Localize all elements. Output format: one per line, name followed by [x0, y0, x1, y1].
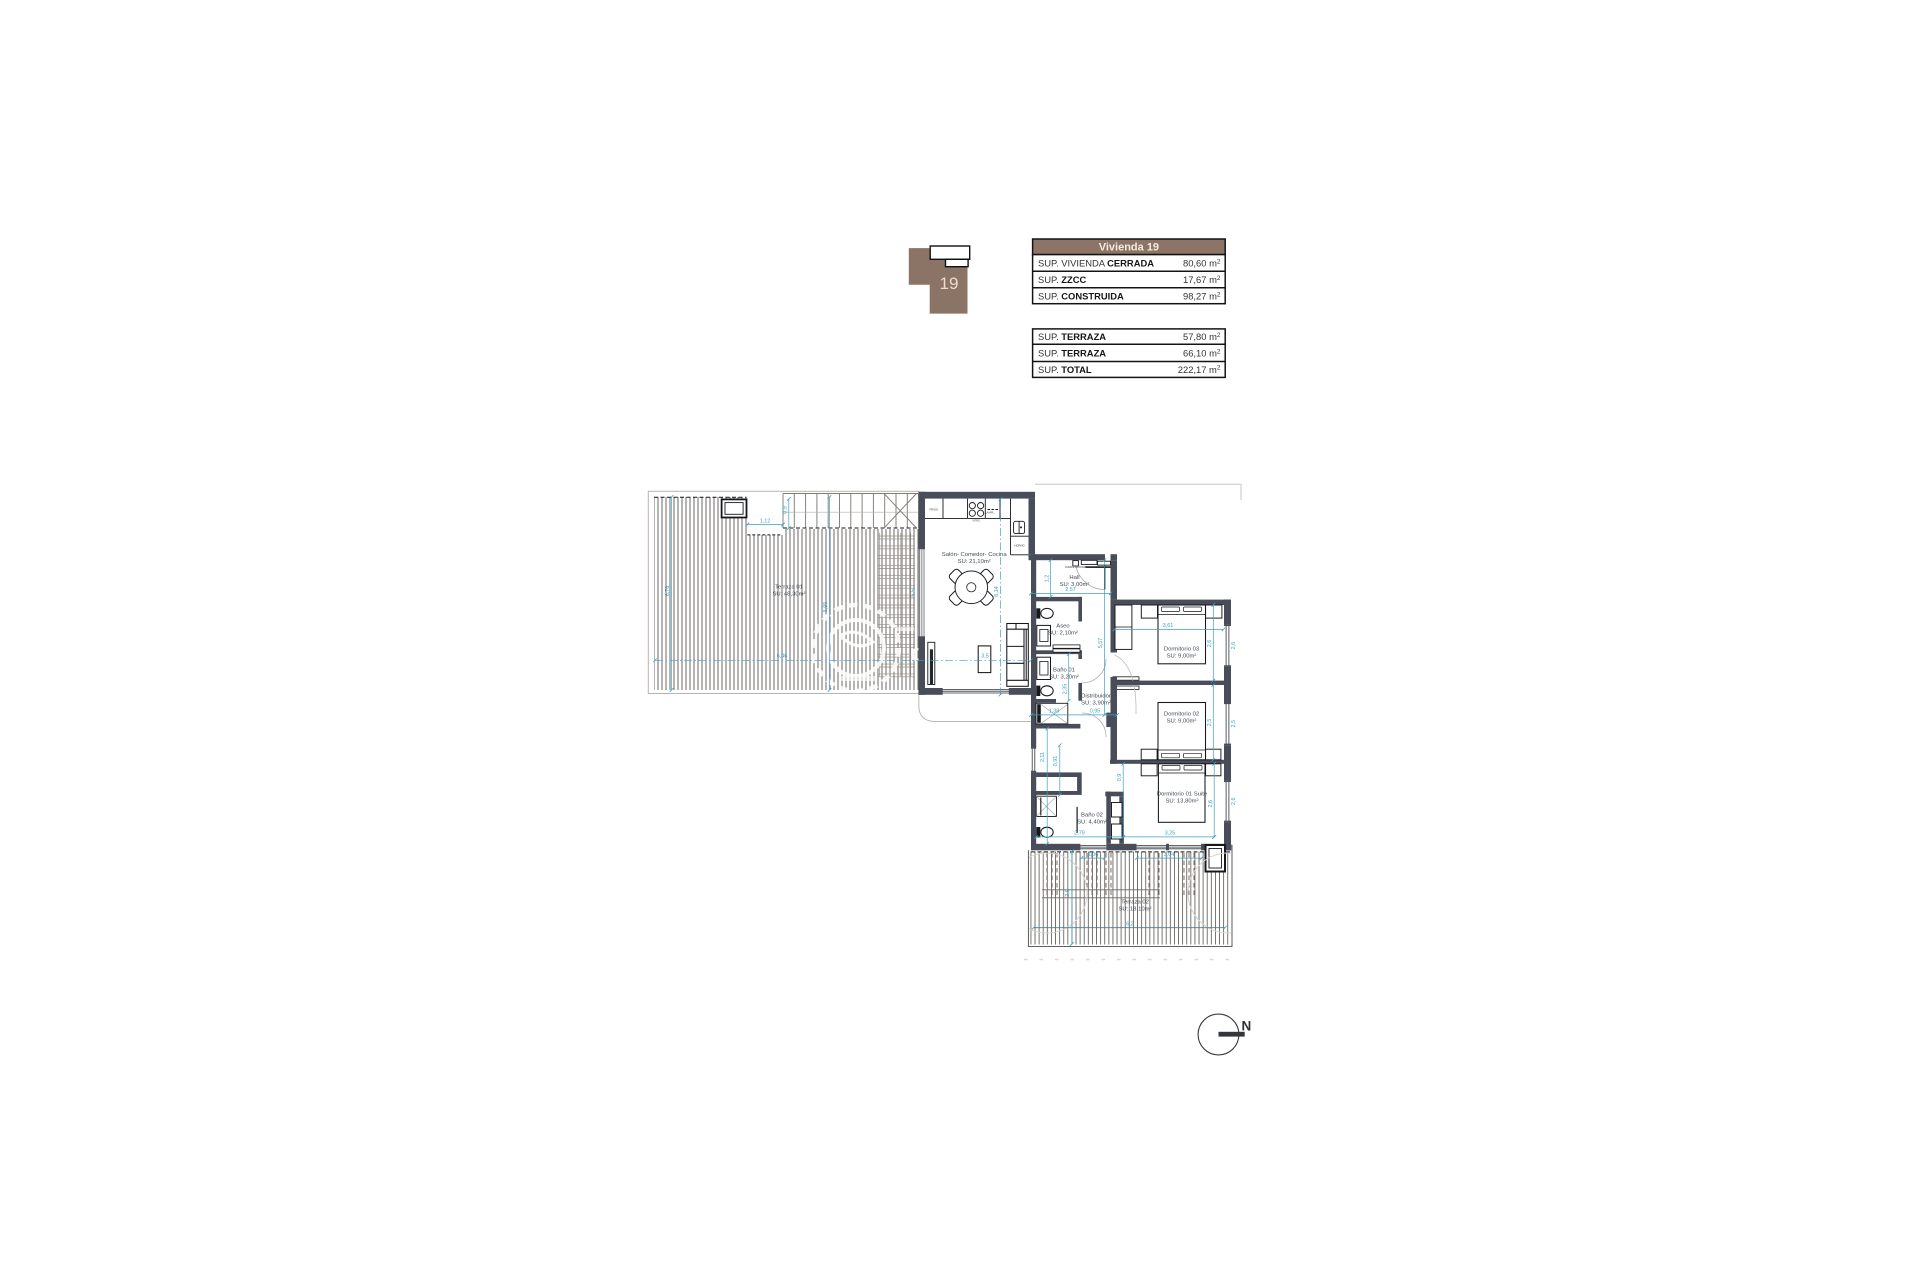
svg-text:1,2: 1,2: [1044, 575, 1050, 583]
svg-text:0,9: 0,9: [783, 506, 789, 514]
svg-text:3,5: 3,5: [981, 654, 989, 660]
svg-text:SUP. ZZCC: SUP. ZZCC: [1038, 274, 1087, 285]
svg-text:5,95: 5,95: [823, 602, 829, 613]
svg-text:SU: 9,00m²: SU: 9,00m²: [1167, 654, 1197, 660]
svg-text:6,46: 6,46: [777, 654, 788, 660]
svg-text:2,9: 2,9: [1065, 889, 1071, 897]
svg-text:2,6: 2,6: [1231, 642, 1237, 650]
svg-text:Terraza 01: Terraza 01: [775, 585, 803, 591]
svg-text:SUP. CONSTRUIDA: SUP. CONSTRUIDA: [1038, 291, 1124, 302]
svg-text:Salón- Comedor- Cocina: Salón- Comedor- Cocina: [942, 552, 1008, 558]
svg-text:1,38: 1,38: [1049, 709, 1060, 715]
svg-text:SU: 3,20m²: SU: 3,20m²: [1049, 675, 1079, 681]
svg-text:SU: 2,10m²: SU: 2,10m²: [1048, 631, 1078, 637]
svg-text:Hall: Hall: [1069, 575, 1079, 581]
svg-text:Vivienda 19: Vivienda 19: [1099, 242, 1159, 254]
svg-text:Baño 02: Baño 02: [1081, 813, 1103, 819]
svg-text:SUP. TERRAZA: SUP. TERRAZA: [1038, 348, 1106, 359]
svg-text:SU: 3,90m²: SU: 3,90m²: [1081, 701, 1111, 707]
svg-text:SUP. TOTAL: SUP. TOTAL: [1038, 364, 1092, 375]
svg-text:57,80 m2: 57,80 m2: [1183, 331, 1221, 342]
svg-text:2,79: 2,79: [1074, 831, 1085, 837]
svg-text:SU: 13,80m²: SU: 13,80m²: [1165, 799, 1198, 805]
svg-text:98,27 m2: 98,27 m2: [1183, 291, 1221, 302]
svg-text:N: N: [1242, 1018, 1252, 1033]
svg-text:Dormitorio 02: Dormitorio 02: [1164, 712, 1199, 718]
svg-text:2,5: 2,5: [1207, 719, 1213, 727]
svg-text:1,12: 1,12: [760, 518, 771, 524]
svg-text:HORNO: HORNO: [1014, 543, 1024, 547]
svg-text:2,35: 2,35: [1062, 684, 1068, 695]
svg-text:2,6: 2,6: [1207, 640, 1213, 648]
svg-text:MUEBLE ZAPATERO: MUEBLE ZAPATERO: [1065, 566, 1087, 569]
svg-text:Dormitorio 01 Suite: Dormitorio 01 Suite: [1157, 792, 1208, 798]
svg-text:SU: 4,40m²: SU: 4,40m²: [1077, 820, 1107, 826]
svg-text:SU: 21,10m²: SU: 21,10m²: [958, 559, 991, 565]
svg-text:5,5: 5,5: [911, 589, 917, 597]
svg-text:VITRO.: VITRO.: [972, 520, 980, 523]
svg-text:SU: 18,10m²: SU: 18,10m²: [1118, 907, 1151, 913]
svg-text:Baño 01: Baño 01: [1053, 668, 1075, 674]
svg-text:2,6: 2,6: [1231, 798, 1237, 806]
svg-text:1,06: 1,06: [1088, 852, 1099, 858]
svg-text:3,61: 3,61: [1163, 623, 1174, 629]
svg-text:80,60 m2: 80,60 m2: [1183, 258, 1221, 269]
svg-text:2,11: 2,11: [1040, 752, 1046, 762]
svg-text:2,5: 2,5: [1231, 720, 1237, 728]
svg-text:17,67 m2: 17,67 m2: [1183, 274, 1221, 285]
svg-text:SU: 9,00m²: SU: 9,00m²: [1167, 719, 1197, 725]
svg-text:222,17 m2: 222,17 m2: [1178, 364, 1221, 375]
svg-text:6,76: 6,76: [665, 586, 671, 597]
svg-text:0,9: 0,9: [1117, 774, 1123, 782]
svg-text:3,04: 3,04: [1164, 852, 1175, 858]
svg-text:SU: 48,30m²: SU: 48,30m²: [772, 592, 805, 598]
svg-text:2,57: 2,57: [1065, 587, 1076, 593]
svg-text:Aseo: Aseo: [1056, 624, 1070, 630]
svg-text:3,25: 3,25: [1165, 831, 1176, 837]
svg-text:6,14: 6,14: [994, 586, 1000, 597]
svg-text:19: 19: [940, 274, 959, 293]
svg-text:Dormitorio 03: Dormitorio 03: [1164, 647, 1200, 653]
svg-text:Distribuidor: Distribuidor: [1081, 694, 1111, 700]
svg-text:SUP. TERRAZA: SUP. TERRAZA: [1038, 331, 1106, 342]
svg-text:66,10 m2: 66,10 m2: [1183, 348, 1221, 359]
svg-text:0,95: 0,95: [1090, 709, 1101, 715]
svg-text:LAVAPL.: LAVAPL.: [985, 511, 995, 514]
svg-text:FRIGO: FRIGO: [930, 507, 939, 511]
svg-text:0,91: 0,91: [1053, 756, 1059, 767]
svg-text:6,2: 6,2: [1126, 921, 1134, 927]
svg-text:SUP. VIVIENDA CERRADA: SUP. VIVIENDA CERRADA: [1038, 258, 1154, 269]
svg-text:2,6: 2,6: [1208, 800, 1214, 808]
svg-text:5,57: 5,57: [1098, 638, 1104, 649]
svg-text:Terraza 02: Terraza 02: [1121, 900, 1149, 906]
